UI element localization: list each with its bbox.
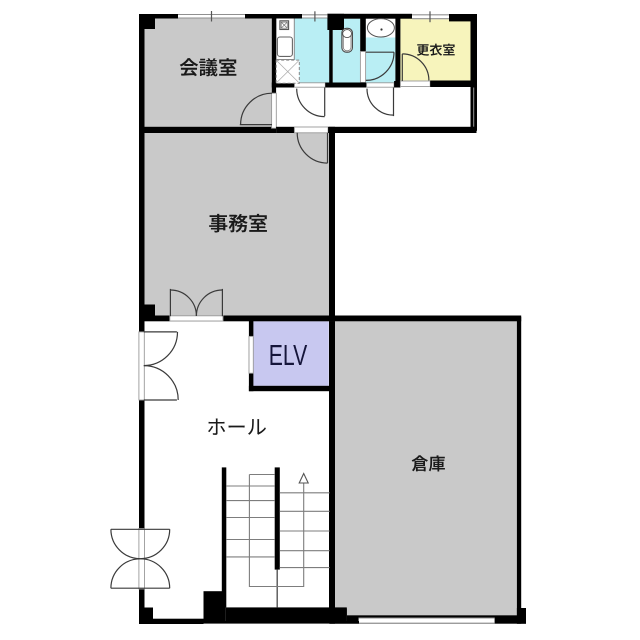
svg-text:ELV: ELV — [269, 340, 308, 372]
